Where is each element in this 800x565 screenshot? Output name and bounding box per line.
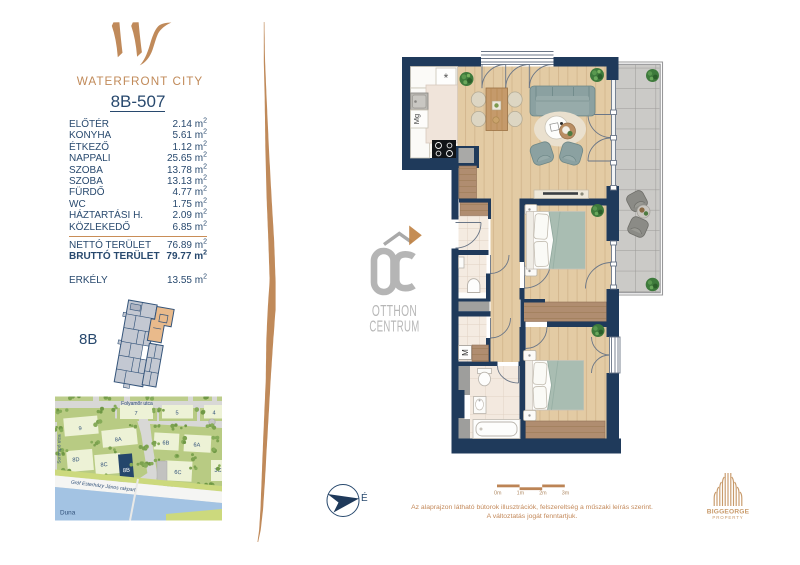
svg-text:*: * (444, 71, 449, 85)
svg-text:2m: 2m (539, 491, 547, 497)
svg-text:1m: 1m (517, 491, 525, 497)
svg-text:4: 4 (212, 411, 215, 417)
svg-text:Mg: Mg (412, 114, 421, 124)
svg-text:5: 5 (175, 411, 178, 417)
svg-text:6C: 6C (174, 470, 181, 476)
svg-text:8D: 8D (72, 457, 80, 464)
svg-text:8C: 8C (100, 462, 108, 469)
svg-text:Folyamőr utca: Folyamőr utca (121, 401, 153, 407)
svg-text:6B: 6B (162, 440, 169, 446)
svg-text:9: 9 (78, 426, 82, 432)
svg-text:CENTRUM: CENTRUM (369, 317, 419, 335)
svg-text:8B: 8B (123, 468, 131, 475)
svg-text:É: É (361, 491, 368, 504)
svg-text:8A: 8A (115, 437, 123, 444)
svg-text:Sorompó utca: Sorompó utca (57, 434, 62, 464)
svg-text:PROPERTY: PROPERTY (712, 515, 743, 520)
svg-text:3m: 3m (562, 491, 570, 497)
svg-text:6A: 6A (193, 442, 200, 448)
svg-text:0m: 0m (494, 491, 502, 497)
svg-text:Duna: Duna (60, 510, 76, 517)
svg-text:7: 7 (134, 411, 137, 417)
svg-text:M: M (461, 349, 470, 356)
